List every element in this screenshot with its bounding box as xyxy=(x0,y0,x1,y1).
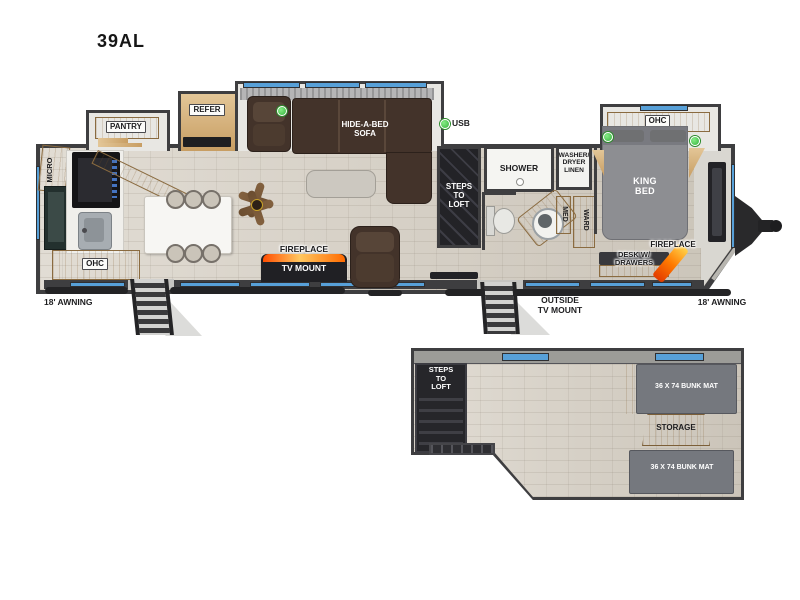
outside-tv-label: OUTSIDE TV MOUNT xyxy=(512,296,608,315)
stool xyxy=(202,244,221,263)
recliner-seat xyxy=(356,254,394,282)
coffee-table xyxy=(306,170,376,198)
stool xyxy=(184,190,203,209)
bath-sink-bowl xyxy=(538,214,552,228)
armchair-seat xyxy=(253,124,285,146)
window xyxy=(305,82,360,88)
awning-right-label: 18' AWNING xyxy=(680,298,764,308)
faucet xyxy=(82,228,87,233)
window xyxy=(640,105,688,111)
bedroom-tv-screen xyxy=(712,168,722,236)
floorplan-canvas: 39AL PANTRY REFER OHC xyxy=(0,0,800,600)
refer-mat xyxy=(183,137,231,147)
king-bed-label: KING BED xyxy=(615,176,675,197)
refer-label: REFER xyxy=(189,104,224,116)
pantry-shelf xyxy=(98,143,142,147)
shower-label: SHOWER xyxy=(486,164,552,174)
window xyxy=(525,282,580,287)
window xyxy=(243,82,300,88)
window xyxy=(395,282,425,287)
bath-wall xyxy=(482,192,485,250)
usb-legend-label: USB xyxy=(452,119,482,129)
med-label: MED xyxy=(556,192,568,236)
shower-drain xyxy=(516,178,524,186)
bedroom-fireplace-label: FIREPLACE xyxy=(634,241,712,250)
sofa-chaise xyxy=(386,152,432,204)
desk-label: DESK W/ DRAWERS xyxy=(600,251,668,268)
awning-rail xyxy=(368,290,402,296)
toilet-bowl xyxy=(493,208,515,234)
outside-tv-bracket xyxy=(430,272,478,279)
loft-steps-label: STEPS TO LOFT xyxy=(416,366,466,392)
usb-indicator xyxy=(603,132,613,142)
pillow xyxy=(608,130,644,142)
window xyxy=(652,282,692,287)
stool xyxy=(166,190,185,209)
sink-basin xyxy=(84,218,104,242)
stool xyxy=(166,244,185,263)
hitch-ball xyxy=(770,220,782,232)
awning-rail xyxy=(170,287,345,294)
recliner-back xyxy=(356,232,394,252)
tall-cabinet-glass xyxy=(48,192,64,242)
awning-rail xyxy=(45,287,128,294)
main-steps-label: STEPS TO LOFT xyxy=(438,182,480,210)
awning-left-label: 18' AWNING xyxy=(40,298,128,308)
sofa-label: HIDE-A-BED SOFA xyxy=(310,120,420,138)
kitchen-ohc-label: OHC xyxy=(82,258,108,270)
floorplan-title: 39AL xyxy=(97,31,145,52)
bunk-trim xyxy=(626,364,636,414)
usb-indicator xyxy=(277,106,287,116)
stool xyxy=(202,190,221,209)
loft-lower-treads xyxy=(429,443,495,455)
pantry-label: PANTRY xyxy=(106,121,146,133)
bunk-top-label: 36 X 74 BUNK MAT xyxy=(639,383,734,391)
window xyxy=(590,282,645,287)
tv-mount-label: TV MOUNT xyxy=(263,264,345,274)
usb-indicator xyxy=(690,136,700,146)
loft-window xyxy=(655,353,704,361)
bath-wall xyxy=(482,192,516,195)
stool xyxy=(184,244,203,263)
living-fireplace-label: FIREPLACE xyxy=(266,245,342,255)
washer-dryer-label: WASHER/ DRYER LINEN xyxy=(553,152,595,174)
bunk-bottom-label: 36 X 74 BUNK MAT xyxy=(634,464,730,472)
ceiling-fan-hub xyxy=(251,199,263,211)
front-window xyxy=(731,164,735,248)
pillow xyxy=(650,130,686,142)
storage-label: STORAGE xyxy=(644,424,708,433)
entry-steps-left xyxy=(130,279,174,335)
fireplace-flame xyxy=(263,254,345,262)
ward-label: WARD xyxy=(577,198,589,242)
usb-legend-dot xyxy=(440,119,450,129)
window xyxy=(365,82,427,88)
loft-window xyxy=(502,353,549,361)
